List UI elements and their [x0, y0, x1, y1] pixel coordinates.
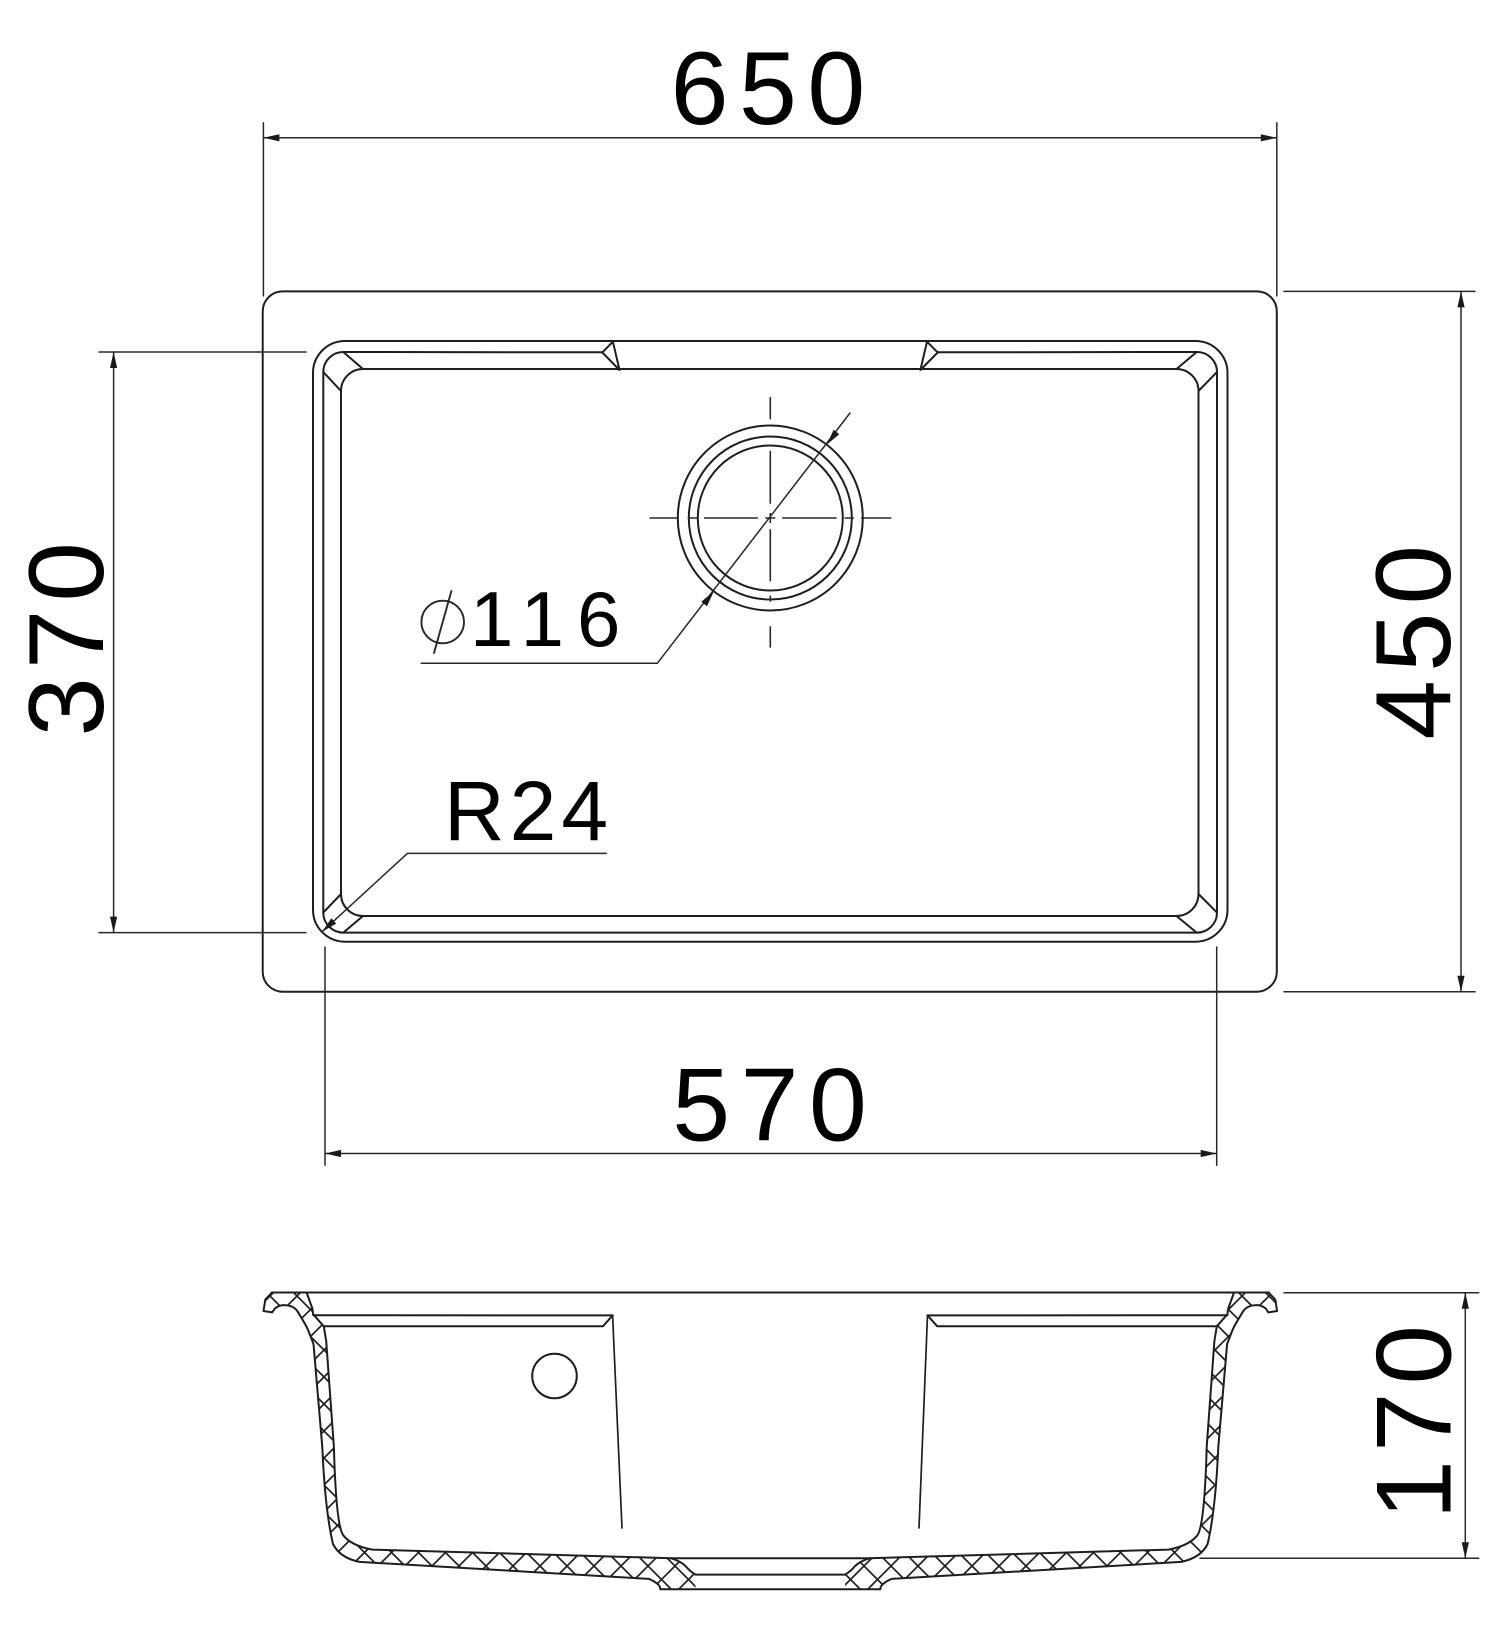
svg-text:R24: R24: [444, 764, 613, 858]
svg-text:650: 650: [671, 31, 876, 147]
svg-text:570: 570: [672, 1048, 877, 1164]
svg-text:116: 116: [470, 575, 633, 663]
svg-text:450: 450: [1353, 537, 1473, 740]
svg-text:170: 170: [1353, 1317, 1473, 1520]
svg-text:370: 370: [6, 534, 126, 737]
